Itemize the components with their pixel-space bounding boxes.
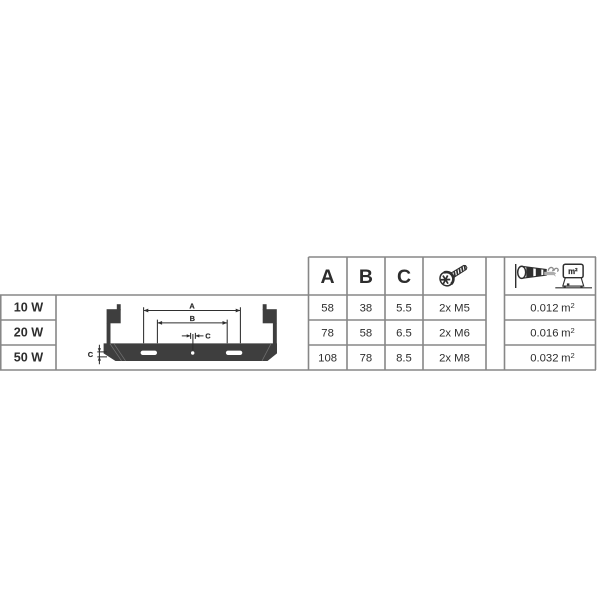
svg-text:0.016m2: 0.016m2 [530,326,575,339]
svg-text:78: 78 [360,353,373,365]
svg-text:38: 38 [360,303,373,315]
svg-text:20 W: 20 W [14,326,44,340]
svg-text:2x M8: 2x M8 [439,353,470,365]
svg-text:2x M6: 2x M6 [439,328,470,340]
svg-text:78: 78 [321,328,334,340]
svg-text:0.032m2: 0.032m2 [530,351,575,364]
svg-text:2x M5: 2x M5 [439,303,470,315]
svg-text:C: C [205,332,211,341]
svg-text:58: 58 [321,303,334,315]
svg-text:B: B [190,314,195,323]
svg-text:6.5: 6.5 [396,328,412,340]
svg-text:C: C [88,350,94,359]
svg-text:A: A [321,266,335,288]
svg-text:m²: m² [568,267,578,276]
svg-text:5.5: 5.5 [396,303,412,315]
svg-text:C: C [397,266,411,288]
svg-text:0.012m2: 0.012m2 [530,301,575,314]
svg-text:8.5: 8.5 [396,353,412,365]
svg-text:B: B [359,266,373,288]
svg-text:10 W: 10 W [14,301,44,315]
svg-text:50 W: 50 W [14,351,44,365]
svg-text:A: A [189,302,195,311]
svg-text:108: 108 [318,353,337,365]
svg-text:58: 58 [360,328,373,340]
